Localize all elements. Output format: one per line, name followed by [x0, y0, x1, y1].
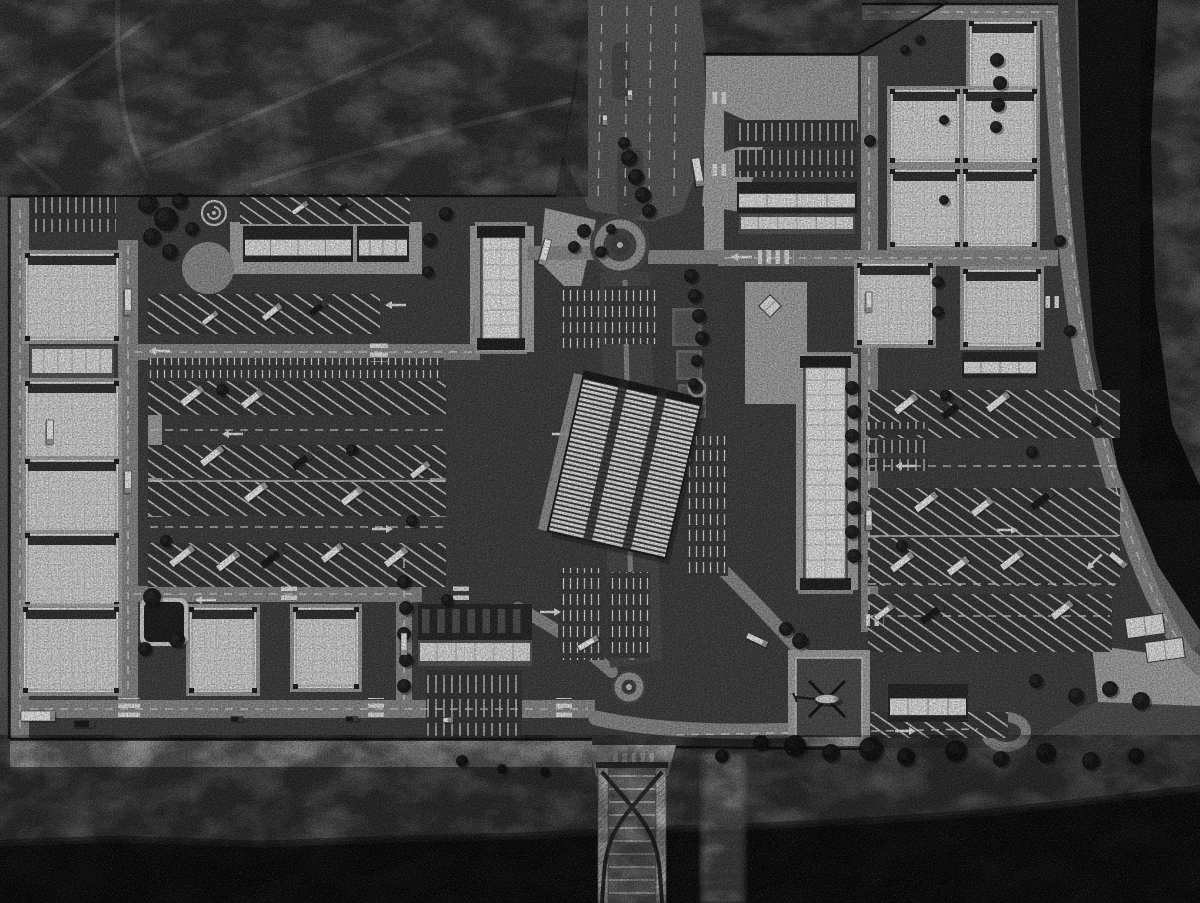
site-plan-canvas	[0, 0, 1200, 903]
grain-light-overlay	[0, 0, 1200, 903]
aerial-site-plan	[0, 0, 1200, 903]
